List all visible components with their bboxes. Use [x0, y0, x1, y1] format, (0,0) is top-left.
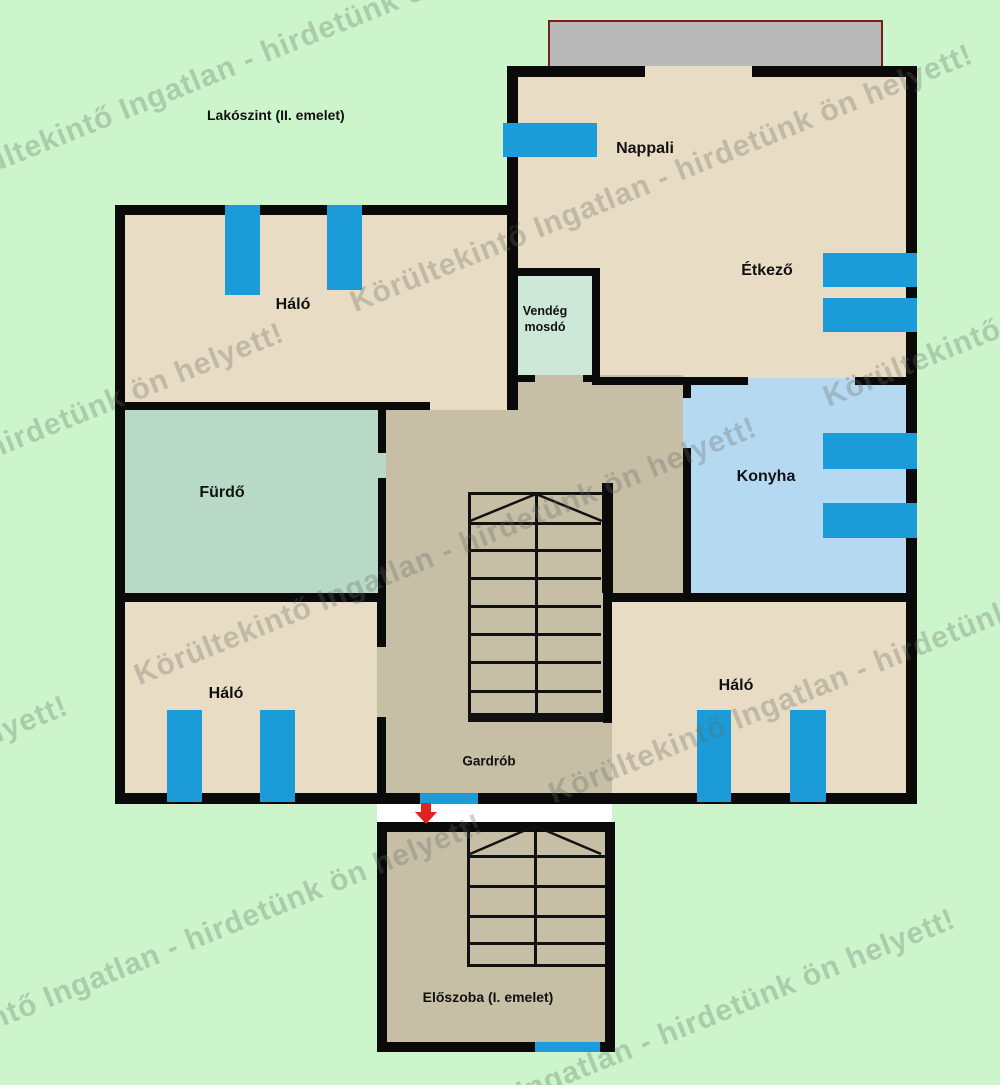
room-label-furdo: Fürdő: [199, 484, 244, 502]
page-title: Lakószint (II. emelet): [207, 107, 345, 123]
stair-direction-lines: [0, 0, 1000, 1085]
down-arrow-stem: [421, 803, 431, 812]
room-label-halo-topleft: Háló: [276, 296, 311, 314]
corridor-gap: [377, 804, 612, 822]
room-label-nappali: Nappali: [616, 140, 674, 158]
vendeg-label-line1: Vendég: [523, 304, 567, 318]
room-label-konyha: Konyha: [737, 468, 796, 486]
floor-plan-canvas: Lakószint (II. emelet) Nappali Étkező Ve…: [0, 0, 1000, 1085]
room-label-etkezo: Étkező: [741, 262, 793, 280]
room-label-gardrob: Gardrób: [462, 754, 515, 769]
vendeg-label-line2: mosdó: [525, 320, 566, 334]
room-label-vendeg-mosdo: Vendég mosdó: [523, 303, 567, 336]
room-label-halo-bottomleft: Háló: [209, 685, 244, 703]
down-arrow-head: [415, 812, 437, 824]
room-label-halo-bottomright: Háló: [719, 677, 754, 695]
down-arrow-icon: [415, 803, 437, 823]
room-label-eloszoba: Előszoba (I. emelet): [423, 989, 554, 1005]
